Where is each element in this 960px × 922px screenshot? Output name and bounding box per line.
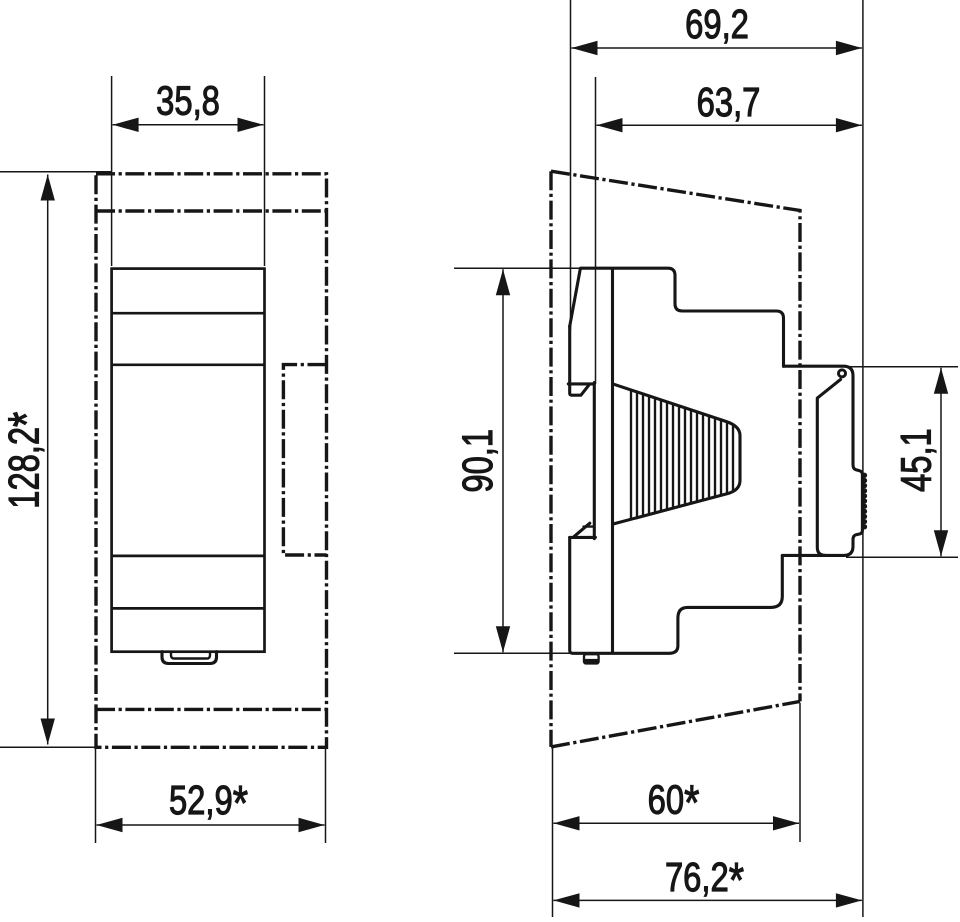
svg-text:45,1: 45,1 (892, 428, 940, 492)
svg-text:52,9*: 52,9* (169, 776, 248, 831)
svg-text:128,2*: 128,2* (0, 412, 56, 509)
svg-text:60*: 60* (648, 776, 700, 831)
svg-text:63,7: 63,7 (697, 78, 761, 124)
svg-text:90,1: 90,1 (454, 429, 502, 493)
svg-text:69,2: 69,2 (685, 0, 749, 46)
svg-text:35,8: 35,8 (156, 77, 220, 123)
